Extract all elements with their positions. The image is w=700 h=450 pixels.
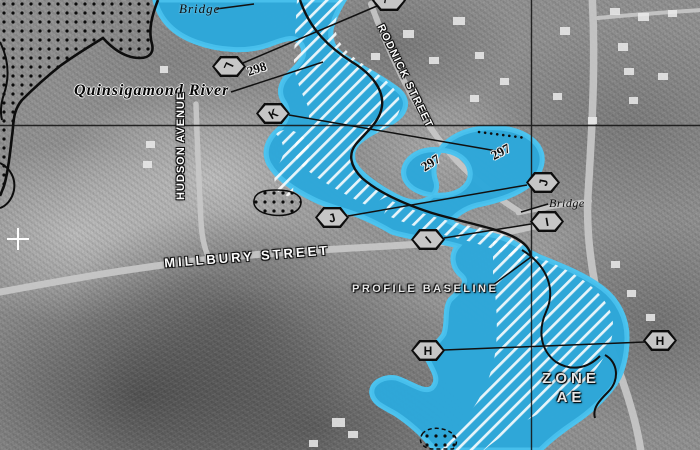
firm-map-panel: L L K J I J I H H Bridge Quinsigamond Ri…: [0, 0, 700, 450]
fiducial-cross: [7, 228, 29, 250]
flood-map-overlay: [0, 0, 700, 450]
